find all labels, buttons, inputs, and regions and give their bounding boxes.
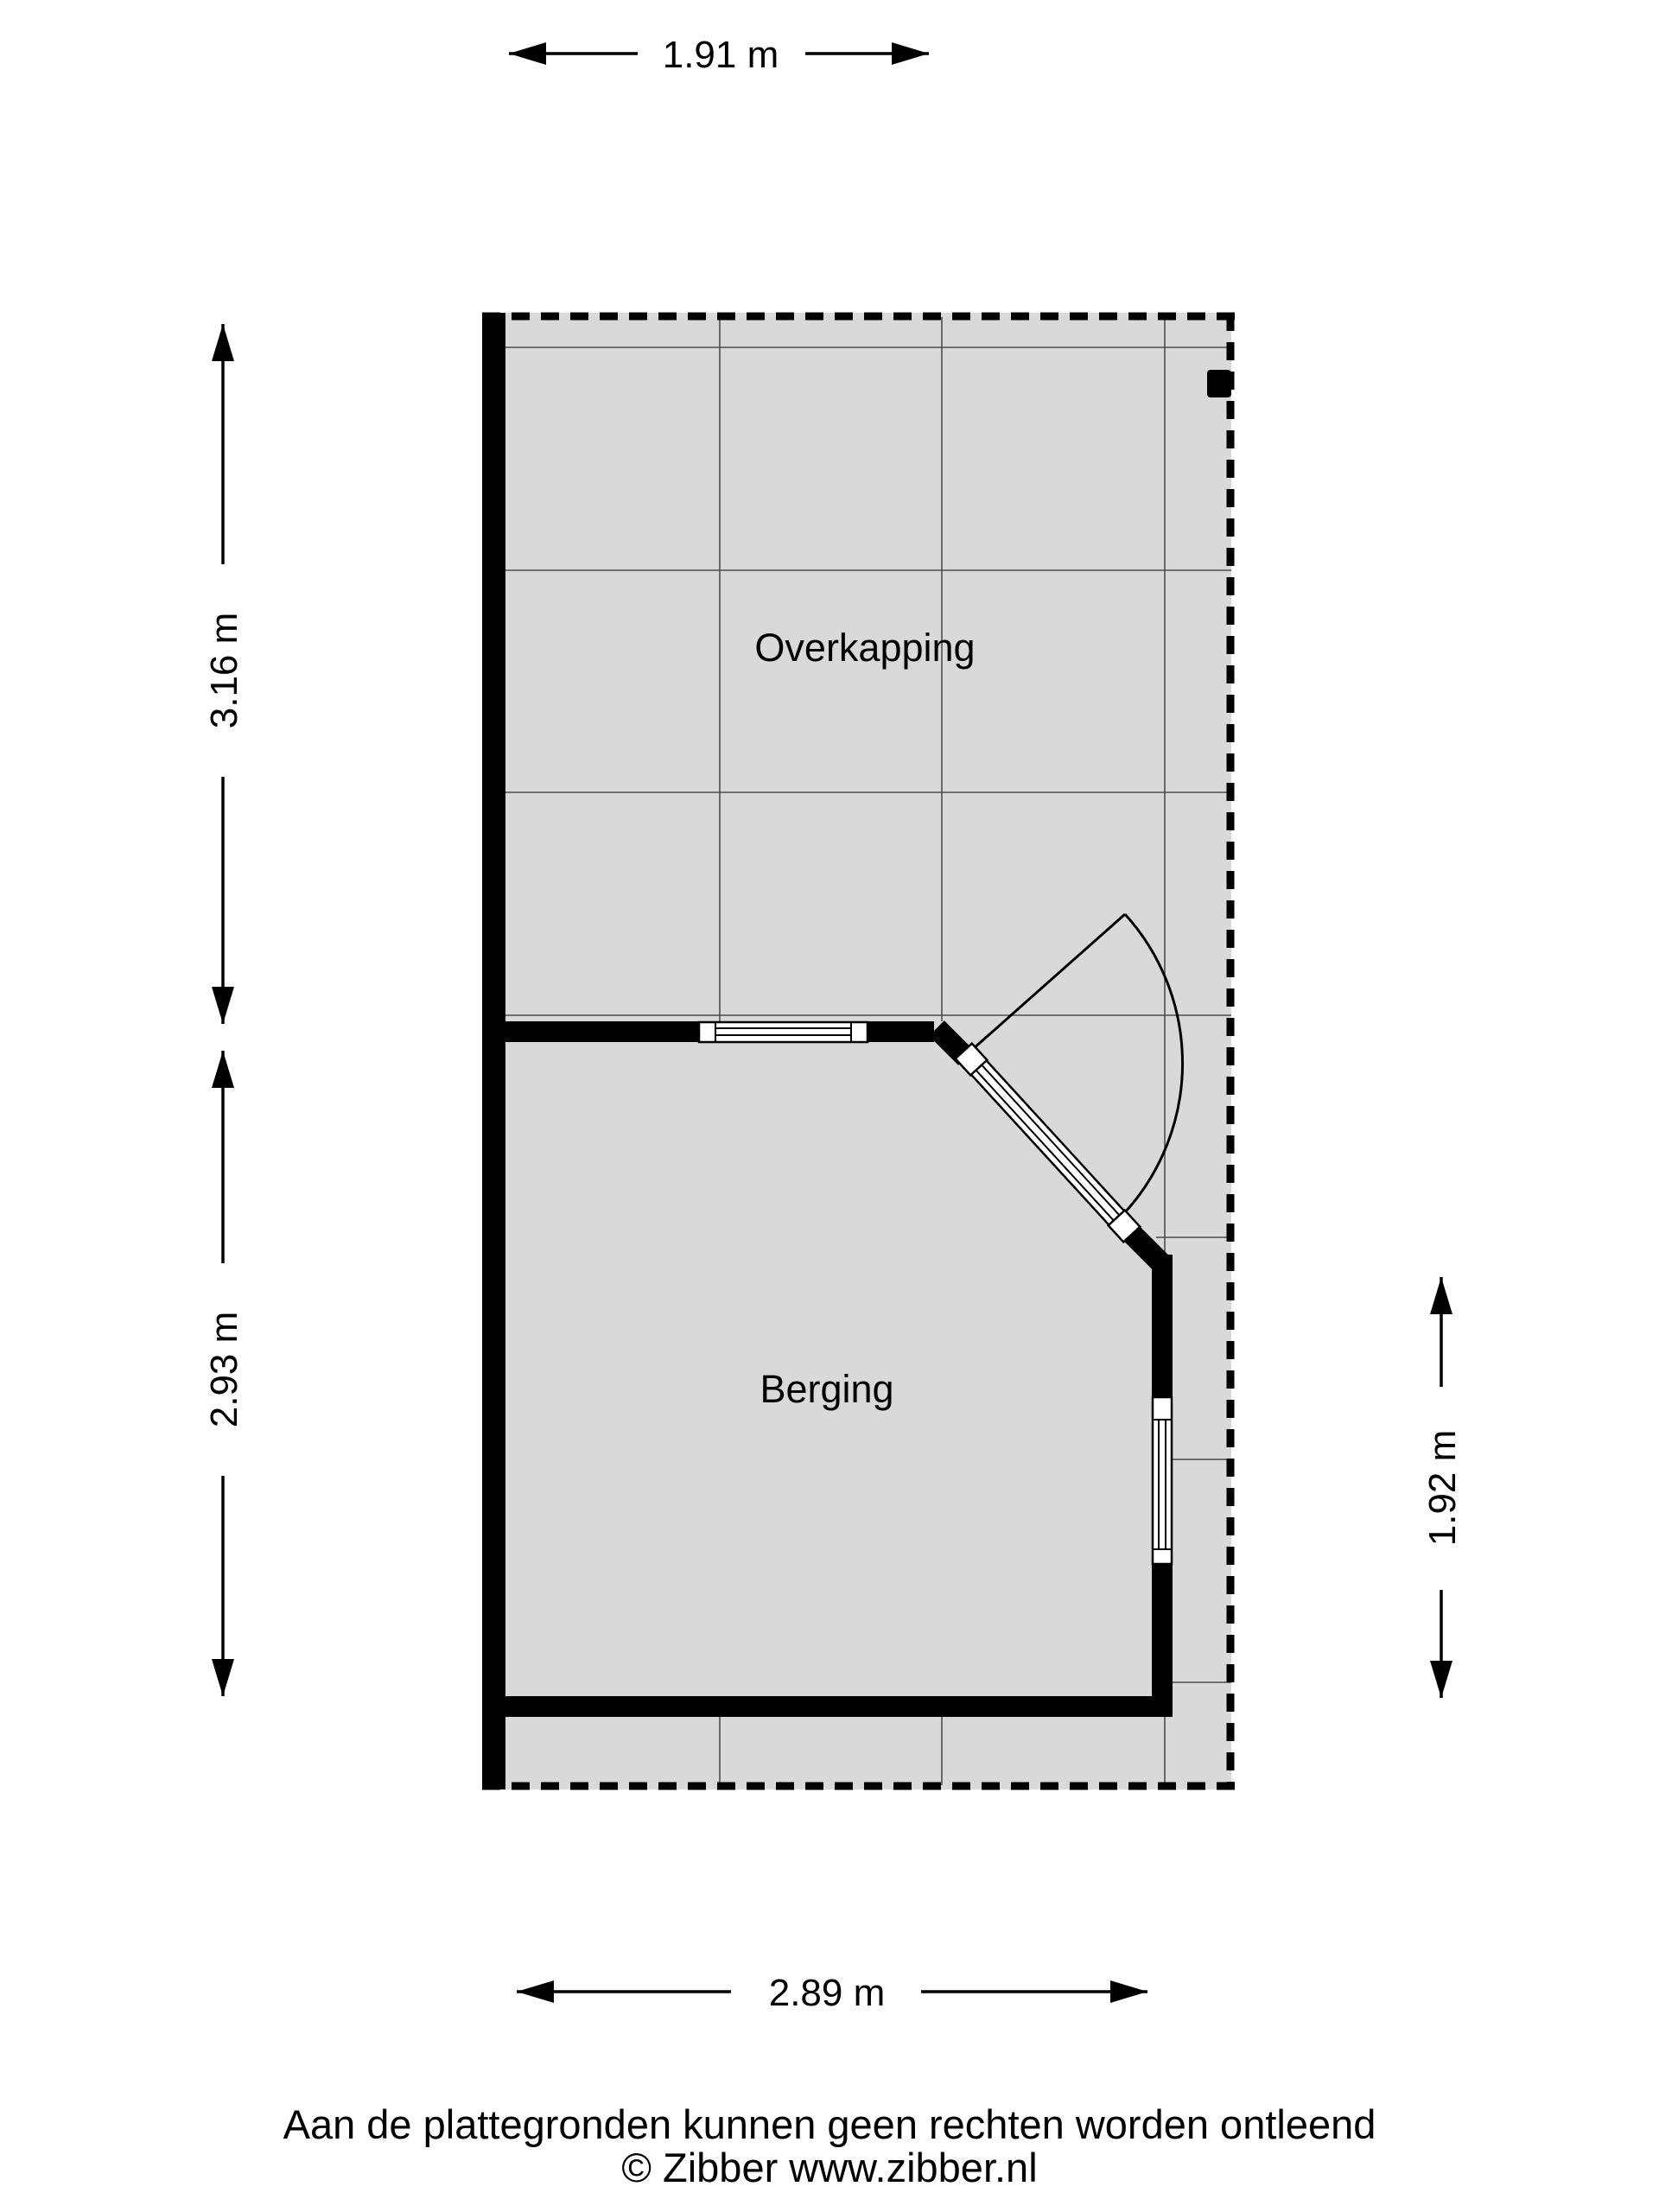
right-window — [1153, 1397, 1172, 1564]
dimension-right: 1.92 m — [1421, 1277, 1464, 1698]
dimension-label-right: 1.92 m — [1421, 1430, 1464, 1547]
dimension-left-lower: 2.93 m — [203, 1051, 245, 1696]
dimension-label-bottom: 2.89 m — [769, 1972, 886, 2014]
arrow-up-icon — [212, 324, 234, 361]
arrow-left-icon — [509, 42, 546, 65]
arrow-down-icon — [212, 987, 234, 1024]
berging-bottom-wall — [482, 1696, 1173, 1717]
dimension-label-top: 1.91 m — [663, 34, 779, 76]
floor-area — [482, 313, 1231, 1789]
arrow-right-icon — [892, 42, 929, 65]
arrow-down-icon — [212, 1659, 234, 1696]
window-frame — [1153, 1397, 1172, 1564]
arrow-right-icon — [1110, 1980, 1147, 2003]
window-frame — [699, 1022, 868, 1042]
arrow-down-icon — [1430, 1661, 1452, 1698]
copyright-text: © Zibber www.zibber.nl — [0, 2146, 1659, 2190]
dimension-bottom: 2.89 m — [517, 1972, 1147, 2014]
dimension-label-left-upper: 3.16 m — [203, 613, 245, 729]
right-wall-lower — [1152, 1564, 1173, 1717]
dimension-top: 1.91 m — [509, 34, 929, 76]
room-label-berging: Berging — [760, 1367, 893, 1411]
berging-top-wall-right — [868, 1021, 934, 1042]
disclaimer-text: Aan de plattegronden kunnen geen rechten… — [0, 2103, 1659, 2146]
top-window — [699, 1022, 868, 1042]
arrow-up-icon — [1430, 1277, 1452, 1314]
footer: Aan de plattegronden kunnen geen rechten… — [0, 2103, 1659, 2190]
arrow-left-icon — [517, 1980, 554, 2003]
left-wall — [482, 313, 505, 1789]
right-wall-upper — [1152, 1255, 1173, 1397]
berging-top-wall-left — [505, 1021, 699, 1042]
arrow-up-icon — [212, 1051, 234, 1088]
floor-plan-canvas: Overkapping Berging 1.91 m 3.16 m 2.93 m… — [0, 0, 1659, 2212]
dimension-label-left-lower: 2.93 m — [203, 1312, 245, 1428]
room-label-overkapping: Overkapping — [754, 626, 975, 670]
dimension-left-upper: 3.16 m — [203, 324, 245, 1024]
